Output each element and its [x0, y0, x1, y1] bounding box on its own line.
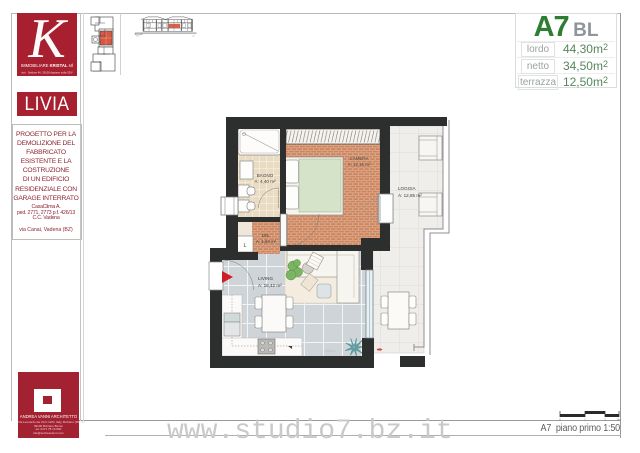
svg-text:via I. Seidner 46, 39100 Appia: via I. Seidner 46, 39100 Appiano sulla S…	[21, 71, 73, 75]
svg-text:5m: 5m	[617, 418, 621, 422]
svg-text:L: L	[243, 243, 246, 249]
svg-text:LIVING: LIVING	[258, 276, 273, 281]
svg-text:A: 12,16 m²: A: 12,16 m²	[348, 162, 371, 167]
svg-text:K: K	[27, 13, 68, 70]
svg-text:BAGNO: BAGNO	[257, 173, 274, 178]
svg-text:DIS.: DIS.	[262, 233, 271, 238]
svg-text:A: 12,85 m²: A: 12,85 m²	[398, 193, 422, 198]
svg-text:0: 0	[559, 418, 561, 422]
svg-text:A: 1,93 m²: A: 1,93 m²	[256, 239, 277, 244]
svg-text:IMMOBILIARE KRISTAL srl: IMMOBILIARE KRISTAL srl	[21, 63, 73, 68]
svg-text:LOGGIA: LOGGIA	[398, 186, 417, 191]
svg-text:2: 2	[604, 418, 606, 422]
svg-text:A: 18,42 m²: A: 18,42 m²	[258, 283, 282, 288]
svg-text:A: 4,40 m²: A: 4,40 m²	[254, 179, 276, 184]
svg-text:CAMERA: CAMERA	[350, 156, 369, 161]
svg-text:1: 1	[584, 418, 586, 422]
